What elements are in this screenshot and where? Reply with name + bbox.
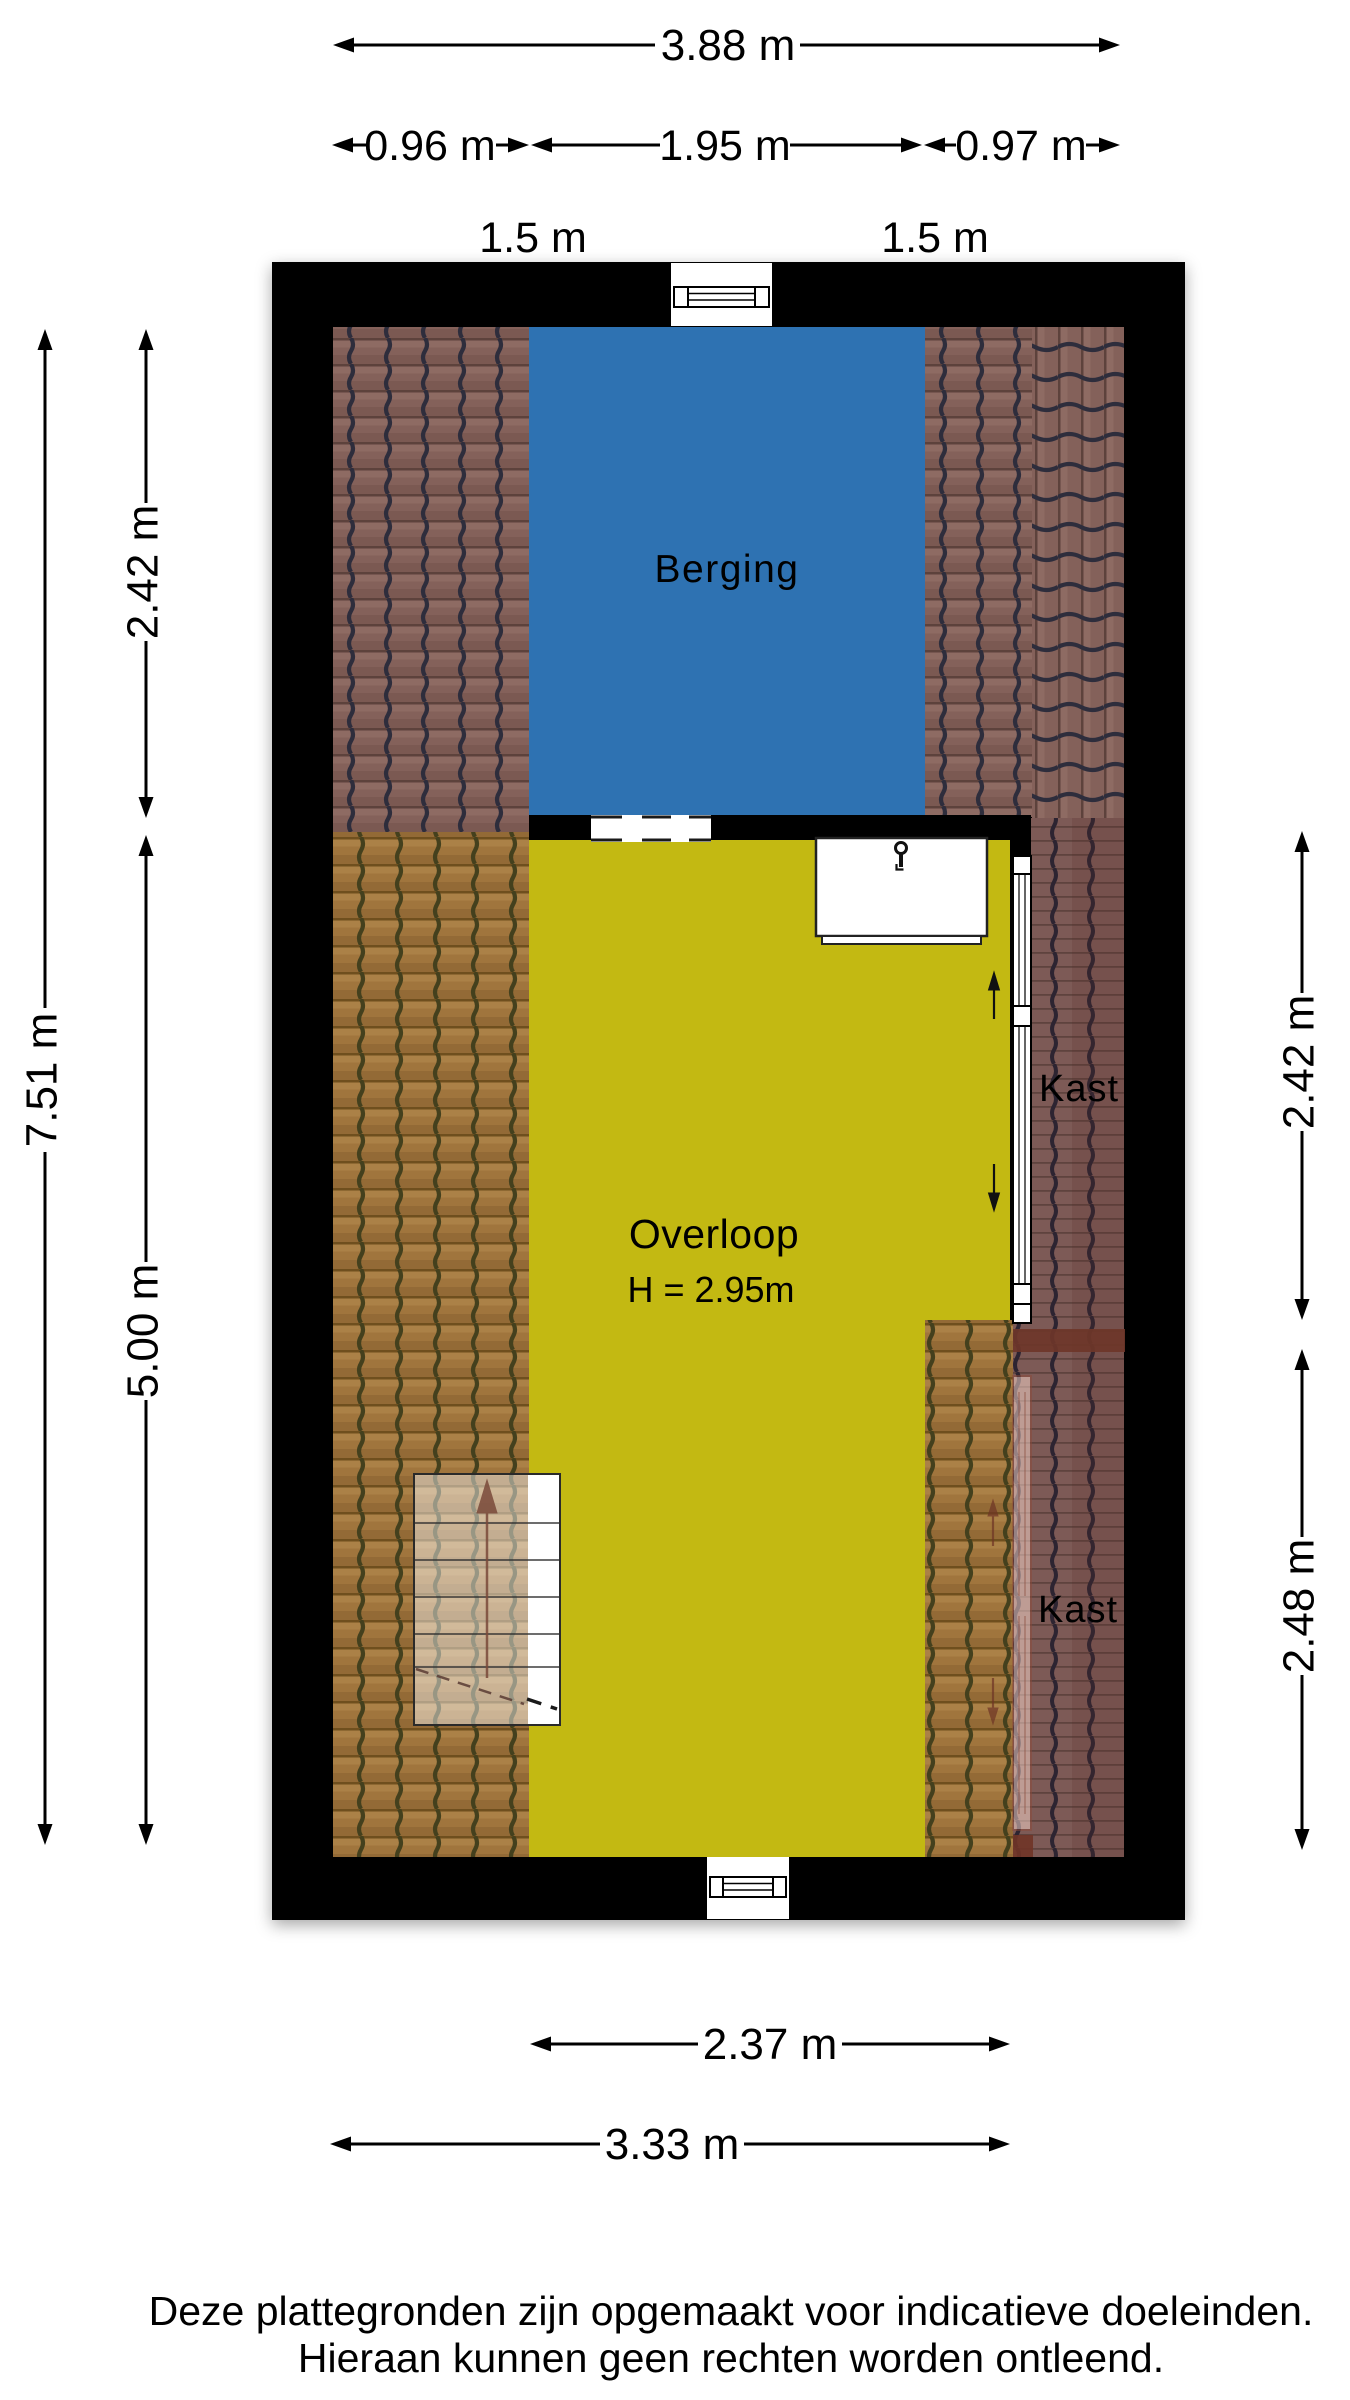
svg-text:Deze plattegronden zijn opgema: Deze plattegronden zijn opgemaakt voor i… <box>149 2288 1314 2334</box>
svg-text:7.51 m: 7.51 m <box>18 1013 67 1148</box>
svg-text:2.42 m: 2.42 m <box>1275 995 1324 1130</box>
svg-text:Overloop: Overloop <box>629 1211 799 1257</box>
svg-text:2.42 m: 2.42 m <box>119 505 168 640</box>
svg-text:0.96 m: 0.96 m <box>364 122 495 170</box>
svg-text:2.37 m: 2.37 m <box>703 2020 838 2069</box>
svg-text:Hieraan kunnen geen rechten wo: Hieraan kunnen geen rechten worden ontle… <box>298 2335 1164 2381</box>
svg-text:H = 2.95m: H = 2.95m <box>627 1269 794 1310</box>
svg-text:3.33 m: 3.33 m <box>605 2120 740 2169</box>
svg-text:2.48 m: 2.48 m <box>1275 1539 1324 1674</box>
svg-text:Kast: Kast <box>1039 1068 1119 1110</box>
svg-text:1.5 m: 1.5 m <box>479 214 587 262</box>
svg-text:Kast: Kast <box>1038 1589 1118 1631</box>
svg-text:Berging: Berging <box>655 548 800 591</box>
svg-text:1.95 m: 1.95 m <box>659 122 790 170</box>
svg-text:5.00 m: 5.00 m <box>119 1264 168 1399</box>
svg-text:0.97 m: 0.97 m <box>955 122 1086 170</box>
svg-text:3.88 m: 3.88 m <box>661 21 796 70</box>
svg-text:1.5 m: 1.5 m <box>881 214 989 262</box>
